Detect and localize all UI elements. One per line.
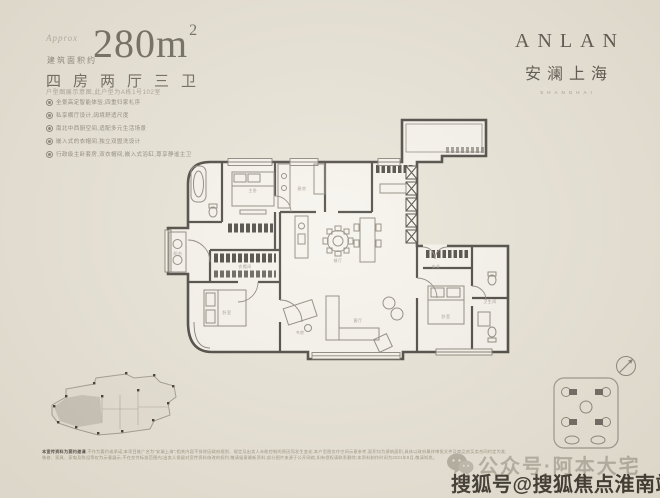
approx-label: Approx xyxy=(46,33,78,43)
lobby-diagram xyxy=(540,352,650,452)
room-label: 卫生间 xyxy=(483,298,497,304)
brand-name-en: ANLAN xyxy=(506,30,634,53)
room-label: 卧室 xyxy=(442,313,451,319)
feature-text: 南北中西厨空间,适配多元生活场景 xyxy=(56,126,146,132)
area-caption: 建筑面积约 xyxy=(47,55,97,66)
room-label: 主卧 xyxy=(249,187,258,193)
plan-outline xyxy=(168,120,508,359)
disclaimer-line2: 装修、家具、家电及陈设等仅为示意展示,不在交付标准范围内;出卖人保留对宣传资料修… xyxy=(42,455,437,460)
bullet-icon xyxy=(46,125,53,132)
disclaimer-bold: 本宣传资料为要约邀请 xyxy=(42,449,86,454)
room-label: 餐厅 xyxy=(334,257,343,263)
room-label: 厨房 xyxy=(298,185,307,191)
feature-text: 私享横厅设计,阔境舒适尺度 xyxy=(56,113,129,119)
room-label: 衣帽间 xyxy=(238,263,252,269)
lobby-fixtures xyxy=(562,388,611,445)
brand-subtitle: SHANGHAI xyxy=(502,90,634,95)
sohu-watermark: 搜狐号@搜狐焦点淮南站 xyxy=(451,468,660,497)
bullet-icon xyxy=(46,99,53,106)
feature-text: 全景高定智能体验,四重归家礼序 xyxy=(56,100,141,106)
key-plan xyxy=(42,366,192,450)
brand-name-cn: 安澜上海 xyxy=(504,60,634,84)
bullet-icon xyxy=(46,151,53,158)
brand-logo: ANLAN 安澜上海 SHANGHAI xyxy=(498,30,634,95)
feature-text: 嵌入式的衣帽间,独立双盥洗设计 xyxy=(56,139,141,145)
unit-note: 户型图展示意图,此户型为A栋1号102室 xyxy=(46,87,161,96)
floorplan: 主卧 衣帽间 厨房 餐厅 客厅 卧室 书房 卧室 卫生间 阳台 玄关 xyxy=(140,100,540,380)
shaft-column xyxy=(406,166,417,243)
room-label: 卧室 xyxy=(223,309,232,315)
bullet-icon xyxy=(46,138,53,145)
compass-icon xyxy=(617,357,636,376)
room-label: 玄关 xyxy=(432,263,441,269)
area-number: 280m xyxy=(93,21,188,66)
room-label: 书房 xyxy=(296,329,305,335)
room-label: 客厅 xyxy=(354,317,363,323)
poster: Approx 建筑面积约 280m2 四房两厅三卫 户型图展示意图,此户型为A栋… xyxy=(0,0,660,498)
area-exponent: 2 xyxy=(189,22,198,39)
bullet-icon xyxy=(46,112,53,119)
room-label: 阳台 xyxy=(174,250,183,256)
area-value: 280m2 xyxy=(93,20,198,67)
disclaimer-line1: ,不作为要约或承诺;本项目推广名为“安澜上海”;相关内容不排除因政府规划、规定及… xyxy=(86,449,507,454)
